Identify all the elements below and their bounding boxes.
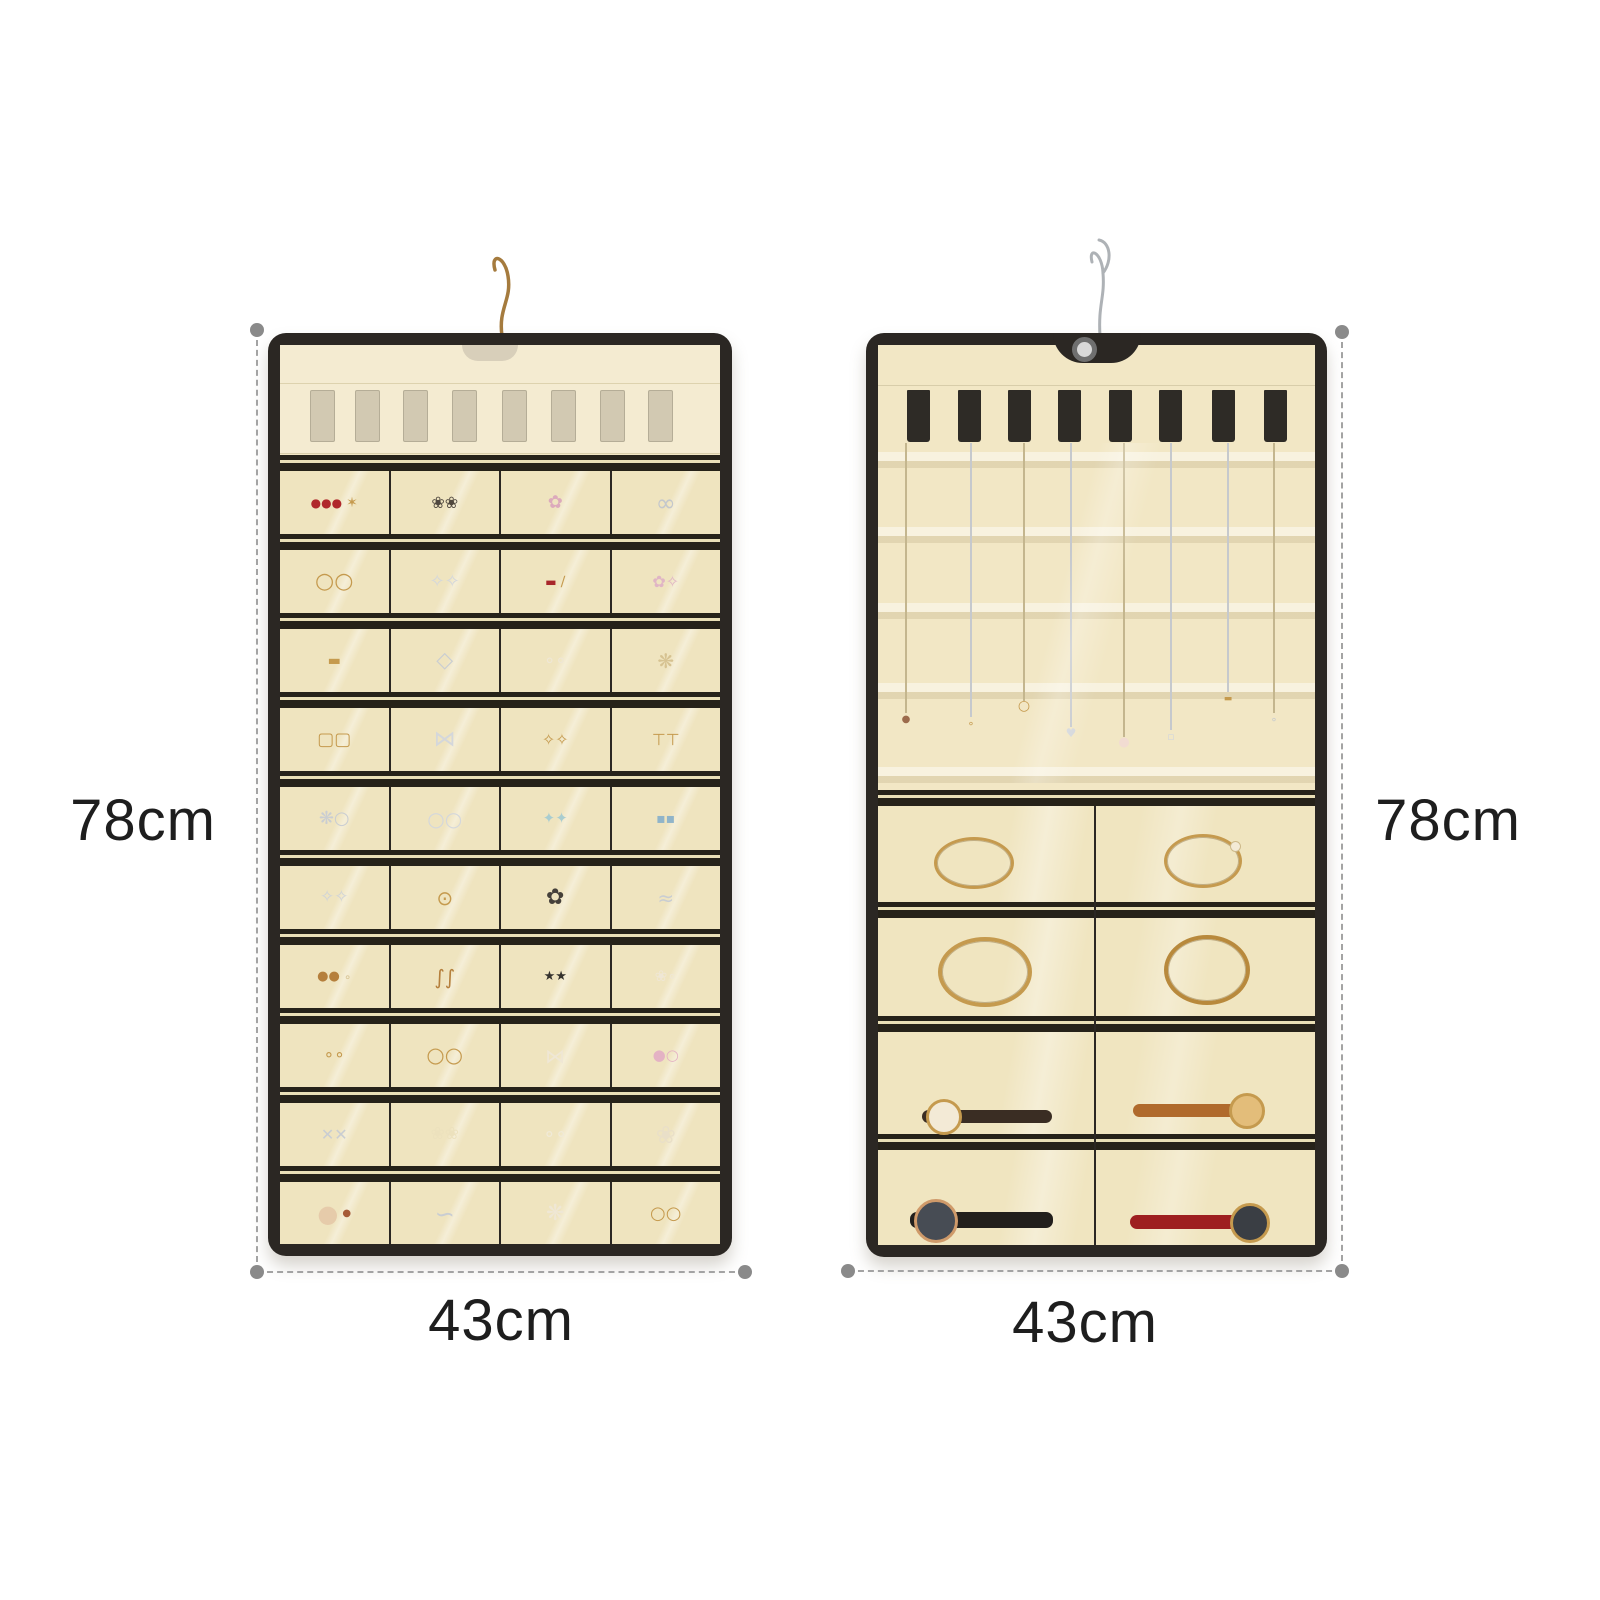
jewelry-item: ❀❀	[431, 1126, 460, 1143]
pocket-cell: ✧✧	[391, 550, 502, 613]
necklace-strap-tab	[1264, 390, 1287, 442]
jewelry-item: ●	[342, 1209, 351, 1219]
jewelry-item: ✿	[546, 887, 564, 909]
dimension-dot	[738, 1265, 752, 1279]
pocket-cell: ∞	[612, 471, 721, 534]
necklace-pendant: ∘	[1271, 714, 1278, 725]
dimension-dot	[250, 1265, 264, 1279]
jewelry-item: ✿✧	[652, 574, 679, 590]
row-separator	[280, 850, 720, 866]
pocket-cell: ▢▢	[280, 708, 391, 771]
pocket-row-cells: ▢▢⋈✧✧⊤⊤	[280, 708, 720, 771]
large-pocket-row	[878, 918, 1315, 1016]
pocket-cell: ●○	[612, 1024, 721, 1087]
right-width-dimension-line	[848, 1270, 1342, 1272]
row-separator	[280, 613, 720, 629]
necklace-pendant: ▬	[1224, 695, 1233, 704]
row-separator	[280, 534, 720, 550]
front-grommet	[462, 345, 518, 361]
pocket-row: ❋○○○✦✦▪▪	[280, 771, 720, 850]
pocket-row-cells: ▬◇∘∘❋	[280, 629, 720, 692]
fabric-stripe	[878, 767, 1315, 783]
organizer-back-panel: ●∘○♥●▫▬∘	[866, 333, 1327, 1257]
pocket-cell: ❋	[501, 1182, 612, 1244]
pocket-cell: ●●●✶	[280, 471, 391, 534]
hanging-slot	[502, 390, 527, 442]
large-pocket-row	[878, 1032, 1315, 1134]
row-separator	[878, 790, 1315, 806]
back-fabric: ●∘○♥●▫▬∘	[878, 345, 1315, 1245]
left-width-dimension-line	[257, 1271, 745, 1273]
hanging-slot	[551, 390, 576, 442]
necklace-pendant: ●	[902, 715, 911, 725]
necklace: ♥	[1070, 443, 1072, 727]
pocket-cell: ❀❀	[391, 1103, 502, 1166]
row-separator	[280, 692, 720, 708]
jewelry-item: ○○	[427, 809, 462, 829]
jewelry-item: ●●	[317, 970, 340, 983]
pocket-cell: ⊙	[391, 866, 502, 929]
product-dimension-diagram: ●●●✶❀❀✿∞○○✧✧▬∕✿✧▬◇∘∘❋▢▢⋈✧✧⊤⊤❋○○○✦✦▪▪✧✧⊙✿…	[0, 0, 1600, 1600]
front-band-seam	[280, 383, 720, 384]
right-height-label: 78cm	[1358, 788, 1538, 855]
pocket-cell: ✿✧	[612, 550, 721, 613]
fabric-stripe	[878, 527, 1315, 543]
necklace-strap-tab	[1008, 390, 1031, 442]
pocket-center-divider	[1094, 806, 1096, 1245]
pocket-row-cells: ●●●✶❀❀✿∞	[280, 471, 720, 534]
jewelry-item: ◇	[436, 650, 453, 672]
pocket-cell: ✿	[501, 471, 612, 534]
pocket-row-cells: ✧✧⊙✿≈	[280, 866, 720, 929]
jewelry-item: ●●●	[311, 497, 342, 509]
necklace: ●	[905, 443, 907, 713]
jewelry-item: ❀❀	[431, 495, 458, 511]
necklace: ▫	[1170, 443, 1172, 730]
jewelry-item: ○○	[315, 571, 353, 593]
necklace-strap-tab	[1159, 390, 1182, 442]
pocket-row-cells: ∘∘○○⋈●○	[280, 1024, 720, 1087]
row-separator	[280, 1166, 720, 1182]
pocket-row-cells: ❋○○○✦✦▪▪	[280, 787, 720, 850]
necklace-chain	[1170, 443, 1172, 730]
pocket-cell: ❋	[612, 629, 721, 692]
jewelry-item: ∘	[344, 971, 352, 983]
jewelry-item: ●○	[653, 1048, 679, 1063]
necklace-strap-tab	[1058, 390, 1081, 442]
gold-bangle	[934, 837, 1014, 889]
gold-bangle	[938, 937, 1032, 1007]
right-height-dimension-line	[1341, 332, 1343, 1271]
pocket-cell: ○○	[391, 1024, 502, 1087]
left-height-dimension-line	[256, 330, 258, 1272]
hanging-slot	[310, 390, 335, 442]
necklace-chain	[1227, 443, 1229, 692]
pocket-cell: ▬	[280, 629, 391, 692]
dimension-dot	[1335, 1264, 1349, 1278]
pocket-cell: ⋈	[501, 1024, 612, 1087]
necklace-chain	[1123, 443, 1125, 737]
necklace-pendant: ○	[1018, 699, 1030, 713]
jewelry-item: ▬	[328, 654, 341, 668]
jewelry-item: ∞	[656, 491, 676, 515]
jewelry-item: ✧✧	[430, 573, 460, 591]
jewelry-item: ✦✦	[543, 811, 568, 826]
necklace-pendant: ●	[1118, 736, 1129, 749]
dimension-dot	[841, 1264, 855, 1278]
pocket-row: ▬◇∘∘❋	[280, 613, 720, 692]
pocket-row: ●●●✶❀❀✿∞	[280, 455, 720, 534]
pocket-row-cells: ●●∘∫∫★★❀∘	[280, 945, 720, 1008]
pocket-cell: ⊤⊤	[612, 708, 721, 771]
front-pocket-grid: ●●●✶❀❀✿∞○○✧✧▬∕✿✧▬◇∘∘❋▢▢⋈✧✧⊤⊤❋○○○✦✦▪▪✧✧⊙✿…	[280, 455, 720, 1244]
watch-face	[926, 1099, 962, 1135]
row-separator	[878, 902, 1315, 918]
pocket-row: ●●∽❋○○	[280, 1166, 720, 1244]
jewelry-item: ❀	[656, 1123, 676, 1147]
pocket-row-cells: ✕✕❀❀∘∘❀	[280, 1103, 720, 1166]
jewelry-item: ○○	[650, 1205, 681, 1223]
gold-bangle	[1164, 935, 1250, 1005]
pocket-cell: ✕✕	[280, 1103, 391, 1166]
necklace-chain	[1023, 443, 1025, 701]
back-seam	[878, 385, 1315, 386]
left-width-label: 43cm	[401, 1288, 601, 1355]
dimension-dot	[250, 323, 264, 337]
necklace-pendant: ♥	[1066, 727, 1077, 739]
pocket-row-cells: ●●∽❋○○	[280, 1182, 720, 1244]
pocket-row: ▢▢⋈✧✧⊤⊤	[280, 692, 720, 771]
jewelry-item: ✶	[346, 496, 358, 510]
fabric-stripe	[878, 603, 1315, 619]
hanging-slot	[648, 390, 673, 442]
row-separator	[280, 1087, 720, 1103]
row-separator	[280, 929, 720, 945]
jewelry-item: ∘∘	[543, 1125, 567, 1144]
jewelry-item: ⋈	[434, 729, 456, 751]
pocket-cell: ▬∕	[501, 550, 612, 613]
right-width-label: 43cm	[985, 1290, 1185, 1357]
hanging-slot	[452, 390, 477, 442]
pocket-cell: ○○	[612, 1182, 721, 1244]
necklace: ∘	[970, 443, 972, 717]
pocket-row: ●●∘∫∫★★❀∘	[280, 929, 720, 1008]
necklace-pendant: ▫	[1167, 731, 1174, 742]
fabric-stripe	[878, 683, 1315, 699]
necklace-chain	[970, 443, 972, 717]
hanging-slot	[355, 390, 380, 442]
dimension-dot	[1335, 325, 1349, 339]
gold-bracelet	[1164, 834, 1242, 888]
pocket-cell: ●●∘	[280, 945, 391, 1008]
jewelry-item: ✿	[548, 494, 563, 512]
organizer-front-panel: ●●●✶❀❀✿∞○○✧✧▬∕✿✧▬◇∘∘❋▢▢⋈✧✧⊤⊤❋○○○✦✦▪▪✧✧⊙✿…	[268, 333, 732, 1256]
necklace-strap-tab	[907, 390, 930, 442]
bracelet-charm	[1230, 841, 1241, 852]
row-separator	[280, 771, 720, 787]
necklace-chain	[1273, 443, 1275, 713]
pocket-cell: ⋈	[391, 708, 502, 771]
jewelry-item: ∕	[561, 575, 566, 589]
left-hanger-hook-icon	[478, 238, 528, 338]
jewelry-item: ❋	[657, 651, 674, 671]
pocket-cell: ★★	[501, 945, 612, 1008]
necklace: ▬	[1227, 443, 1229, 692]
watch-face	[1229, 1093, 1265, 1129]
jewelry-item: ▬	[545, 576, 556, 588]
pocket-cell: ❀❀	[391, 471, 502, 534]
jewelry-item: ⊙	[436, 888, 453, 908]
pocket-cell: ◇	[391, 629, 502, 692]
watch-face	[914, 1199, 958, 1243]
jewelry-item: ∘∘	[544, 652, 567, 670]
jewelry-item: ❋○	[319, 810, 350, 828]
left-height-label: 78cm	[53, 788, 233, 855]
necklace-chain	[905, 443, 907, 713]
necklace: ○	[1023, 443, 1025, 701]
necklace-strap-tab	[1109, 390, 1132, 442]
jewelry-item: ✧✧	[542, 732, 569, 748]
watch-face	[1230, 1203, 1270, 1243]
pocket-cell: ✦✦	[501, 787, 612, 850]
front-fabric: ●●●✶❀❀✿∞○○✧✧▬∕✿✧▬◇∘∘❋▢▢⋈✧✧⊤⊤❋○○○✦✦▪▪✧✧⊙✿…	[280, 345, 720, 1244]
pocket-cell: ∘∘	[501, 629, 612, 692]
jewelry-item: ▪▪	[656, 812, 675, 826]
pocket-cell: ∫∫	[391, 945, 502, 1008]
large-pocket-row	[878, 806, 1315, 902]
pocket-row-cells: ○○✧✧▬∕✿✧	[280, 550, 720, 613]
pocket-cell: ≈	[612, 866, 721, 929]
necklace-strap-tab	[958, 390, 981, 442]
pocket-row: ✕✕❀❀∘∘❀	[280, 1087, 720, 1166]
large-pocket-row	[878, 1150, 1315, 1245]
pocket-cell: ∘∘	[280, 1024, 391, 1087]
pocket-cell: ▪▪	[612, 787, 721, 850]
necklace: ●	[1123, 443, 1125, 737]
pocket-cell: ❀∘	[612, 945, 721, 1008]
pocket-cell: ∘∘	[501, 1103, 612, 1166]
pocket-row: ✧✧⊙✿≈	[280, 850, 720, 929]
pocket-cell: ✿	[501, 866, 612, 929]
row-separator	[280, 1008, 720, 1024]
pocket-cell: ●●	[280, 1182, 391, 1244]
jewelry-item: ▢▢	[317, 731, 351, 749]
back-grommet-ring	[1072, 337, 1097, 362]
pocket-row: ○○✧✧▬∕✿✧	[280, 534, 720, 613]
jewelry-item: ○○	[426, 1045, 463, 1066]
row-separator	[878, 1134, 1315, 1150]
jewelry-item: ∽	[435, 1202, 455, 1226]
necklace: ∘	[1273, 443, 1275, 713]
jewelry-item: ★★	[544, 970, 567, 983]
jewelry-item: ⋈	[545, 1046, 565, 1066]
jewelry-item: ❀∘	[655, 969, 677, 984]
hanging-slot	[600, 390, 625, 442]
jewelry-item: ∘∘	[324, 1047, 345, 1064]
jewelry-item: ✕✕	[321, 1127, 348, 1143]
front-top-band	[280, 345, 720, 454]
jewelry-item: ⊤⊤	[652, 732, 680, 748]
right-hanger-hook-icon	[1078, 228, 1126, 338]
pocket-cell: ✧✧	[501, 708, 612, 771]
necklace-strap-tab	[1212, 390, 1235, 442]
pocket-cell: ✧✧	[280, 866, 391, 929]
jewelry-item: ≈	[657, 888, 674, 908]
pocket-cell: ○○	[280, 550, 391, 613]
jewelry-item: ∫∫	[434, 967, 455, 987]
pocket-cell: ❋○	[280, 787, 391, 850]
necklace-chain	[1070, 443, 1072, 727]
jewelry-item: ❋	[546, 1203, 564, 1225]
jewelry-item: ●	[317, 1202, 338, 1226]
hanging-slot	[403, 390, 428, 442]
fabric-stripe	[878, 452, 1315, 468]
pocket-cell: ❀	[612, 1103, 721, 1166]
necklace-pendant: ∘	[968, 718, 975, 729]
pocket-cell: ∽	[391, 1182, 502, 1244]
pocket-cell: ○○	[391, 787, 502, 850]
jewelry-item: ✧✧	[320, 889, 349, 906]
pocket-row: ∘∘○○⋈●○	[280, 1008, 720, 1087]
row-separator	[280, 455, 720, 471]
row-separator	[878, 1016, 1315, 1032]
